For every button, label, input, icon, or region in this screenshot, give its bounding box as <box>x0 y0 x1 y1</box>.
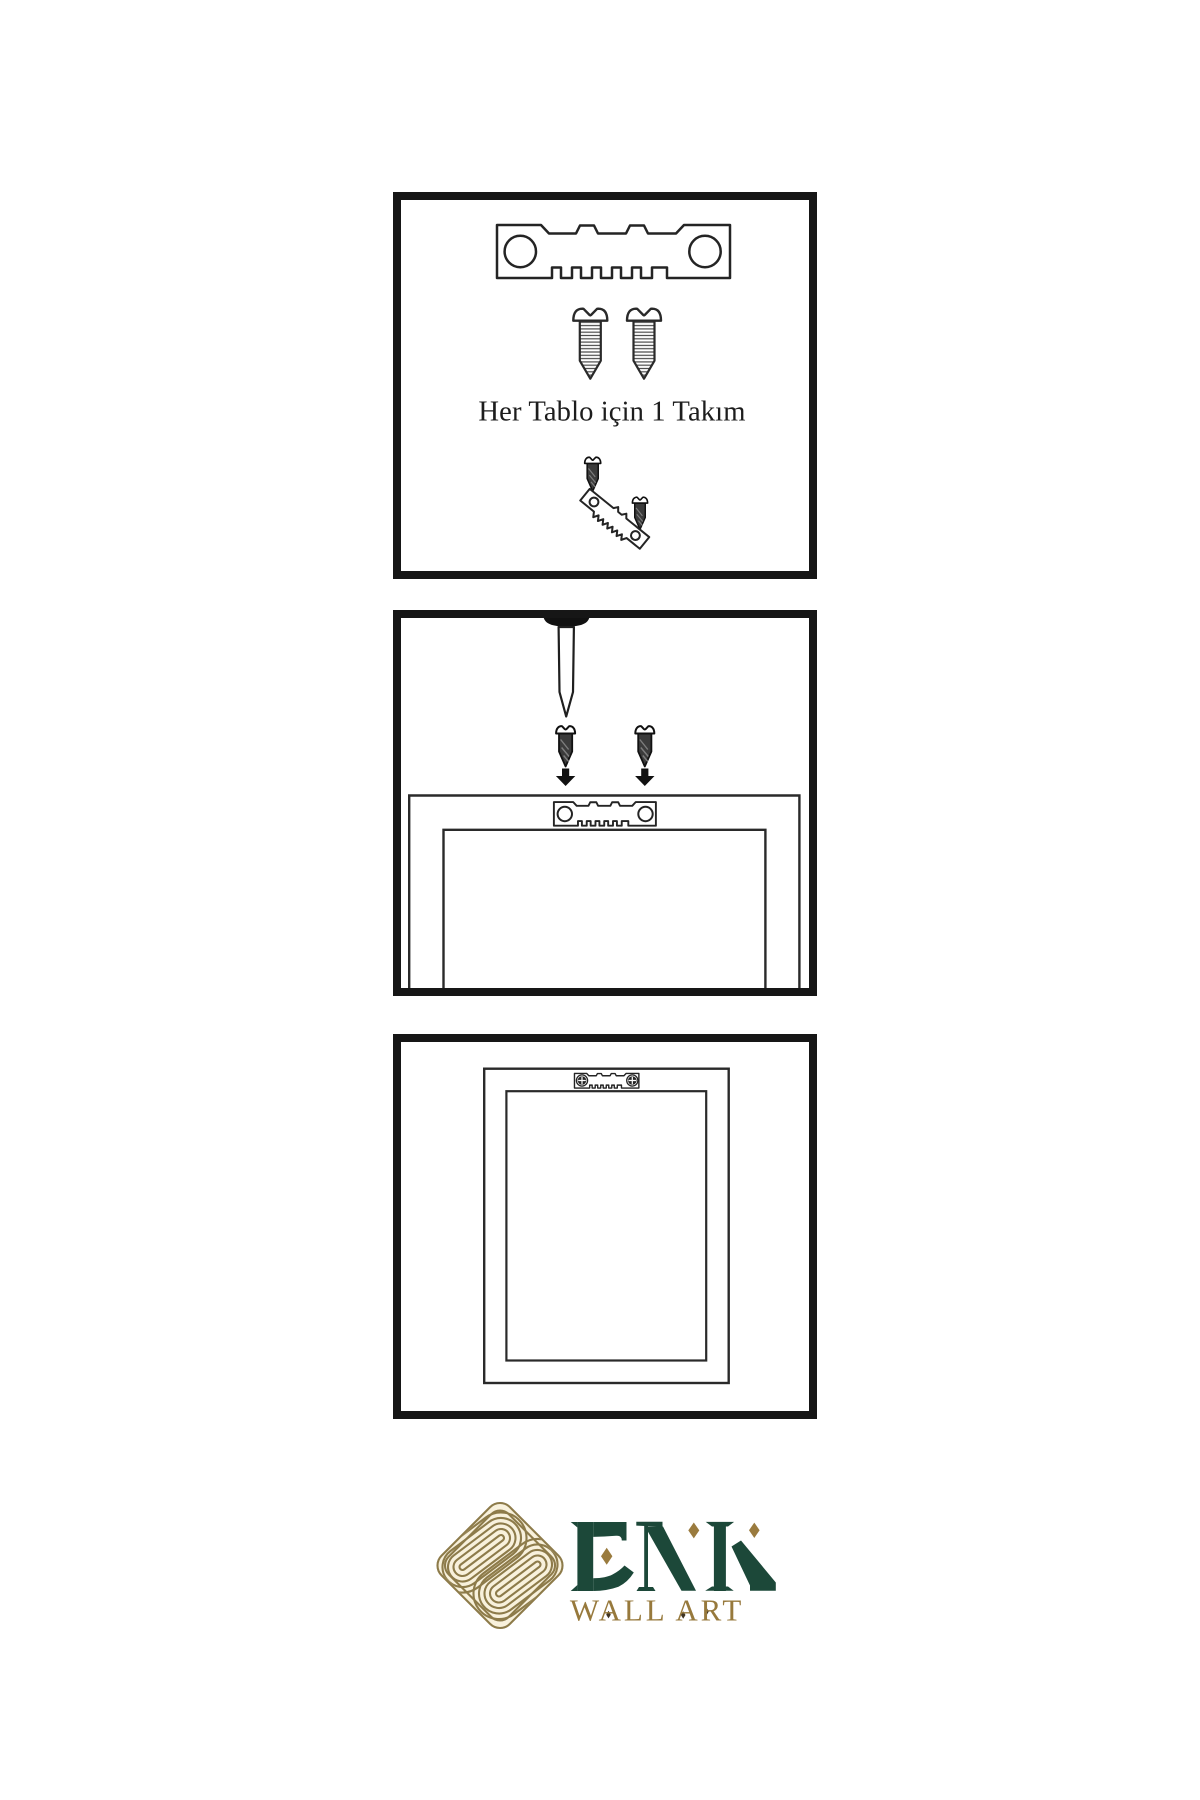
svg-text:WALL ART: WALL ART <box>570 1593 744 1628</box>
svg-text:Her Tablo için 1 Takım: Her Tablo için 1 Takım <box>478 397 745 428</box>
